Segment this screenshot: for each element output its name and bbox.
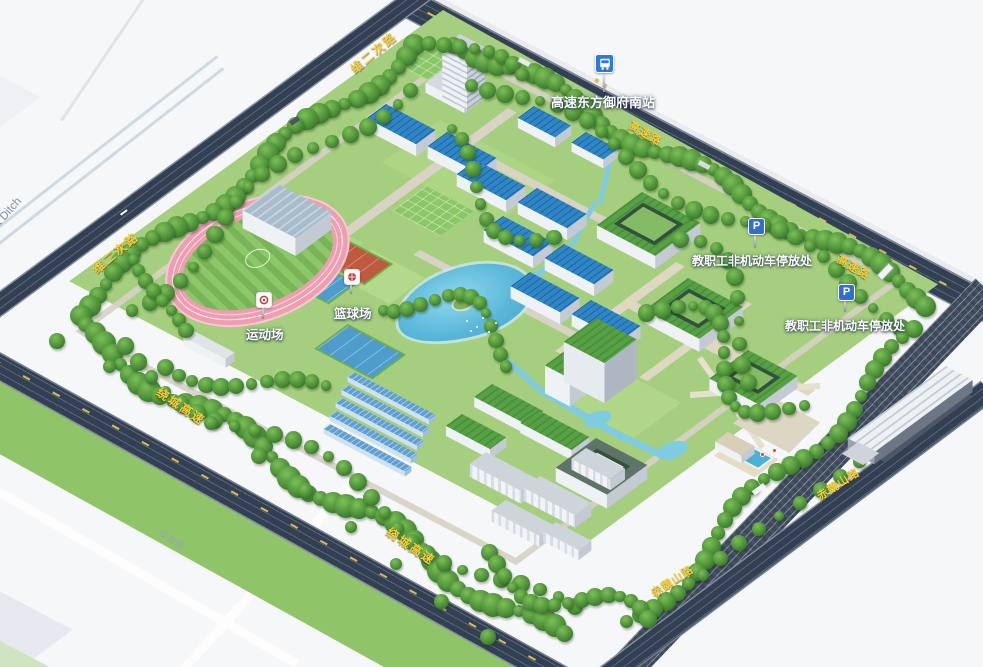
bus-sign-pole bbox=[603, 70, 605, 92]
basketball-court-label[interactable]: 篮球场 bbox=[334, 303, 372, 322]
stadium-glyph bbox=[259, 295, 269, 305]
parking-icon-1[interactable]: P bbox=[748, 218, 765, 235]
road-label-ring-expwy-1: 绕城高速 bbox=[153, 383, 209, 428]
stadium-marker-icon[interactable] bbox=[256, 292, 272, 308]
staff-parking-label-1[interactable]: 教职工非机动车停放处 bbox=[692, 252, 812, 269]
road-label-weierci-1: 维二次路 bbox=[347, 28, 401, 77]
sports-field-label[interactable]: 运动场 bbox=[246, 324, 284, 343]
ditch-label: ia Ditch bbox=[0, 195, 24, 232]
bus-icon[interactable] bbox=[595, 54, 614, 73]
road-label-mountain-2: 赤魏山路 bbox=[648, 561, 697, 601]
parking-icon-2[interactable]: P bbox=[838, 284, 855, 301]
map-label-layer: 高速东方御府南站 P 教职工非机动车停放处 P 教职工非机动车停放处 运动场 篮… bbox=[0, 0, 983, 667]
basketball-glyph bbox=[347, 272, 357, 282]
bus-glyph bbox=[599, 58, 611, 70]
road-label-ring-expwy-2: 绕城高速 bbox=[383, 523, 439, 568]
planned-road-label: 规划路 bbox=[157, 527, 188, 552]
road-label-mountain-1: 赤魏山路 bbox=[814, 464, 863, 504]
road-label-expressway-2: 高速路 bbox=[834, 251, 873, 283]
campus-3d-map[interactable]: 高速东方御府南站 P 教职工非机动车停放处 P 教职工非机动车停放处 运动场 篮… bbox=[0, 0, 983, 667]
road-label-weierci-2: 维二次路 bbox=[89, 228, 143, 277]
road-label-expressway-1: 高速路 bbox=[626, 117, 665, 149]
basketball-marker-icon[interactable] bbox=[344, 269, 360, 285]
staff-parking-label-2[interactable]: 教职工非机动车停放处 bbox=[785, 317, 905, 334]
bus-station-label[interactable]: 高速东方御府南站 bbox=[551, 92, 655, 111]
